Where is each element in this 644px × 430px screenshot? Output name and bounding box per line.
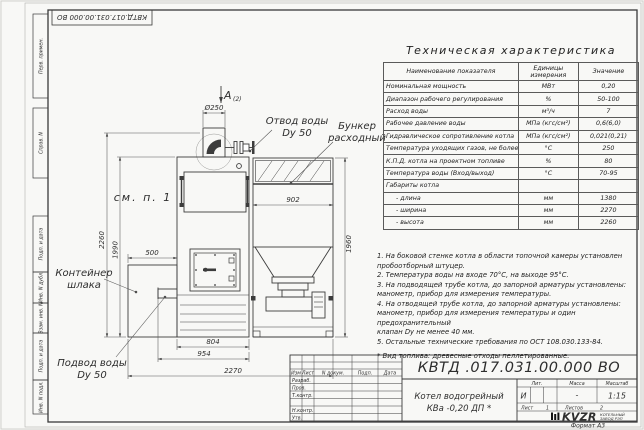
callout-hopper: Бункер [338, 121, 376, 132]
callout-water-outlet-dn: Dy 50 [282, 128, 312, 139]
spec-cell: Номинальная мощность [384, 81, 519, 93]
dim-2270: 2270 [224, 367, 242, 375]
spec-col-units: Единицы измерения [518, 63, 578, 81]
spec-cell: 1380 [578, 192, 638, 204]
top-stamp-doc-number: КВТД.017.031.00.000 ВО [57, 13, 147, 21]
dim-804: 804 [206, 338, 219, 346]
tb-row-prov: Пров. [292, 386, 306, 392]
dim-2260: 2260 [98, 231, 106, 249]
spec-cell: - длина [384, 192, 519, 204]
spec-cell: м³/ч [518, 105, 578, 117]
spec-col-value: Значение [578, 63, 638, 81]
left-label-podp-data-1: Подп. и дата [39, 228, 45, 261]
spec-row: Диапазон рабочего регулирования%50-100 [384, 93, 639, 105]
company-name-2: ЗАВОД РЭП [600, 416, 623, 421]
left-label-vzam-inv: Взам. инв. N [39, 302, 45, 334]
left-label-perv-primen: Перв. примен. [39, 38, 45, 74]
spec-cell: Расход воды [384, 105, 519, 117]
spec-row: Номинальная мощностьМВт0,20 [384, 81, 639, 93]
spec-cell: - высота [384, 217, 519, 229]
spec-cell: Рабочее давление воды [384, 118, 519, 130]
spec-cell: °С [518, 167, 578, 179]
dim-1960: 1960 [345, 235, 353, 253]
note-line: манометр, прибор для измерения температу… [377, 290, 641, 300]
spec-row: Габариты котла [384, 180, 639, 192]
spec-row: - длинамм1380 [384, 192, 639, 204]
spec-cell [518, 180, 578, 192]
note-line: 4. На отводящей трубе котла, до запорной… [377, 300, 641, 310]
callout-see-note-1: см. п. 1 [114, 191, 173, 204]
spec-cell: МВт [518, 81, 578, 93]
spec-cell: мм [518, 204, 578, 216]
callout-slag-container-2: шлака [67, 280, 101, 291]
view-a-sheet-ref: (2) [233, 96, 242, 103]
spec-cell: - ширина [384, 204, 519, 216]
spec-cell: 0,6(6,0) [578, 118, 638, 130]
spec-cell: МПа (кгс/см²) [518, 130, 578, 142]
spec-cell: Диапазон рабочего регулирования [384, 93, 519, 105]
tb-lit-value: И [521, 392, 527, 401]
spec-row: Рабочее давление водыМПа (кгс/см²)0,6(6,… [384, 118, 639, 130]
dim-500: 500 [145, 249, 159, 257]
spec-cell: °С [518, 142, 578, 154]
spec-cell: 2260 [578, 217, 638, 229]
tb-mass-header: Масса [569, 381, 584, 387]
spec-cell: % [518, 155, 578, 167]
left-label-sprav-n: Справ. N [39, 132, 45, 154]
callout-water-outlet: Отвод воды [266, 116, 329, 127]
technical-notes: 1. На боковой стенке котла в области топ… [377, 252, 641, 362]
spec-table-title: Техническая характеристика [383, 44, 639, 57]
spec-row: - ширинамм2270 [384, 204, 639, 216]
spec-cell: Температура воды (Вход/выход) [384, 167, 519, 179]
tb-header-izm: Изм [291, 371, 301, 377]
left-label-inv-podl: Инв. N подл. [39, 381, 45, 413]
note-line: 5. Остальные технические требования по О… [377, 338, 641, 348]
tb-sheets-value: 2 [600, 406, 603, 412]
tb-scale-header: Масштаб [606, 381, 629, 387]
note-line: клапан Dу не менее 40 мм. [377, 328, 641, 338]
dim-chimney-dia: Ø250 [204, 104, 224, 112]
spec-table-section: Техническая характеристика Наименование … [383, 44, 639, 230]
tb-header-data: Дата [383, 371, 396, 377]
callout-water-inlet: Подвод воды [57, 358, 127, 369]
spec-cell: Габариты котла [384, 180, 519, 192]
dim-954: 954 [197, 350, 210, 358]
spec-row: Температура уходящих газов, не более°С25… [384, 142, 639, 154]
spec-row: Гидравлическое сопротивление котлаМПа (к… [384, 130, 639, 142]
tb-header-podp: Подп. [358, 371, 373, 377]
note-line: манометр, прибор для измерения температу… [377, 309, 641, 328]
tb-mass-value: - [576, 391, 579, 400]
spec-col-units-line2: измерения [521, 72, 576, 79]
spec-row: - высотамм2260 [384, 217, 639, 229]
tb-scale-value: 1:15 [608, 392, 626, 401]
format-label: Формат А3 [571, 423, 605, 430]
spec-cell: 0,20 [578, 81, 638, 93]
spec-header-row: Наименование показателя Единицы измерени… [384, 63, 639, 81]
tb-header-list: Лист [301, 371, 314, 377]
left-label-podp-data-2: Подп. и дата [39, 340, 45, 373]
spec-cell: 50-100 [578, 93, 638, 105]
product-name-2: КВа -0,20 ДП * [427, 404, 491, 414]
tb-sheet-label: Лист [520, 406, 533, 412]
callout-hopper-2: расходный [327, 133, 386, 144]
note-line: 3. На подводящей трубе котла, до запорно… [377, 281, 641, 291]
spec-cell: 80 [578, 155, 638, 167]
spec-col-name: Наименование показателя [384, 63, 519, 81]
spec-row: Расход водым³/ч7 [384, 105, 639, 117]
spec-table: Наименование показателя Единицы измерени… [383, 62, 639, 230]
product-name-1: Котел водогрейный [414, 392, 504, 402]
spec-cell: Температура уходящих газов, не более [384, 142, 519, 154]
spec-cell: мм [518, 192, 578, 204]
spec-row: Температура воды (Вход/выход)°С70-95 [384, 167, 639, 179]
callout-water-inlet-dn: Dy 50 [77, 370, 107, 381]
spec-cell: 2270 [578, 204, 638, 216]
spec-cell [578, 180, 638, 192]
spec-cell: Гидравлическое сопротивление котла [384, 130, 519, 142]
note-line: 1. На боковой стенке котла в области топ… [377, 252, 641, 262]
note-line: пробоотборный штуцер. [377, 262, 641, 272]
tb-lit-header: Лит. [530, 381, 542, 387]
tb-row-utv: Утв. [292, 416, 302, 422]
dim-1990: 1990 [112, 241, 120, 259]
spec-col-units-line1: Единицы [521, 65, 576, 72]
spec-cell: 250 [578, 142, 638, 154]
callout-slag-container: Контейнер [55, 268, 112, 279]
spec-cell: 70-95 [578, 167, 638, 179]
spec-cell: 0,021(0,21) [578, 130, 638, 142]
spec-cell: К.П.Д. котла на проектном топливе [384, 155, 519, 167]
spec-cell: МПа (кгс/см²) [518, 118, 578, 130]
view-a-label: А [223, 89, 232, 102]
tb-row-tkontr: Т.контр. [292, 393, 313, 399]
tb-sheet-value: 1 [546, 406, 549, 412]
note-line: 2. Температура воды на входе 70°С, на вы… [377, 271, 641, 281]
dim-902: 902 [286, 196, 300, 204]
fuel-type-note: * Вид топлива: древесные отходы пеллетир… [377, 352, 641, 362]
tb-header-docn: N докум. [322, 371, 344, 377]
spec-cell: мм [518, 217, 578, 229]
tb-row-razrab: Разраб. [292, 378, 311, 384]
spec-cell: 7 [578, 105, 638, 117]
tb-row-nkontr: Н.контр. [292, 408, 313, 414]
spec-row: К.П.Д. котла на проектном топливе%80 [384, 155, 639, 167]
doc-number: КВТД .017.031.00.000 ВО [418, 360, 620, 376]
left-label-inv-dubl: Инв. N дубл. [39, 271, 45, 302]
spec-cell: % [518, 93, 578, 105]
